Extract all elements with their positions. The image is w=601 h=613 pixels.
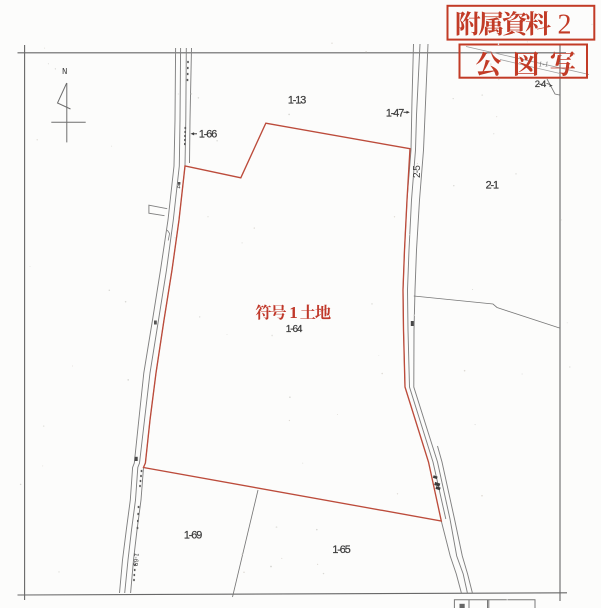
svg-text:2-4: 2-4: [535, 79, 546, 90]
svg-text:1-13: 1-13: [288, 94, 306, 106]
svg-text:1-1: 1-1: [539, 60, 549, 69]
svg-text:1-66: 1-66: [199, 129, 217, 141]
svg-text:N: N: [62, 67, 67, 77]
svg-text:2-1: 2-1: [486, 180, 499, 192]
svg-text:1-47: 1-47: [386, 108, 404, 120]
svg-text:1: 1: [289, 303, 298, 322]
svg-text:2-5: 2-5: [412, 165, 423, 178]
svg-text:1-65: 1-65: [332, 544, 350, 556]
svg-text:2: 2: [558, 10, 572, 41]
svg-text:1-69: 1-69: [184, 530, 202, 542]
svg-text:1-64: 1-64: [286, 324, 303, 335]
